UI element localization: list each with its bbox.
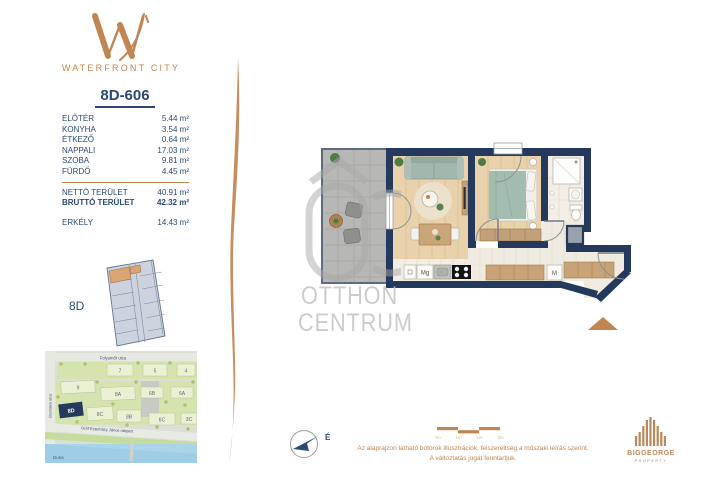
map-building-label: 4	[185, 369, 188, 375]
entrance-triangle-marker	[588, 317, 618, 330]
balcony-area: 14.43 m²	[157, 218, 189, 229]
scale-label: 3m	[497, 435, 504, 440]
room-label: SZOBA	[62, 156, 89, 167]
net-label: NETTÓ TERÜLET	[62, 188, 128, 199]
towel-ring	[550, 205, 554, 209]
street-label-top: Folyamőr utca	[100, 356, 127, 361]
balcony-label: ERKÉLY	[62, 218, 93, 229]
table-row: NAPPALI 17.03 m²	[62, 146, 189, 157]
bed	[489, 169, 537, 221]
location-map: 7 5 4 9 8A 6B 6A 8C 8B 6C 3C 8D Folyamőr…	[45, 351, 197, 463]
unit-title-wrap: 8D-606	[62, 87, 188, 108]
room-label: FÜRDŐ	[62, 167, 90, 178]
table-row: ELŐTÉR 5.44 m²	[62, 114, 189, 125]
table-row: FÜRDŐ 4.45 m²	[62, 167, 189, 178]
room-area: 3.54 m²	[162, 125, 189, 136]
room-area: 9.81 m²	[162, 156, 189, 167]
dishwasher-label: Mg	[421, 271, 429, 277]
hall-cabinet	[486, 265, 544, 280]
gross-area: 42.32 m²	[157, 198, 189, 209]
map-building-label: 8C	[97, 412, 104, 418]
map-building-label: 6C	[159, 418, 166, 424]
utility-shaft	[567, 226, 583, 244]
table-row: KONYHA 3.54 m²	[62, 125, 189, 136]
tv-cabinet	[462, 181, 468, 215]
room-area: 0.64 m²	[162, 135, 189, 146]
brand-name: WATERFRONT CITY	[55, 63, 187, 73]
river-label: Duna	[53, 455, 64, 460]
unit-id: 8D-606	[95, 87, 154, 108]
map-building-label: 8B	[126, 415, 133, 421]
room-area-table: ELŐTÉR 5.44 m² KONYHA 3.54 m² ÉTKEZŐ 0.6…	[62, 114, 189, 228]
map-building-label-8d: 8D	[67, 408, 75, 415]
table-row: SZOBA 9.81 m²	[62, 156, 189, 167]
kitchen-appliances	[404, 265, 471, 279]
plant	[478, 158, 486, 166]
floorplan-sheet: { "brand": { "name": "WATERFRONT CITY" }…	[0, 0, 707, 500]
watermark-line1: OTTHON	[301, 282, 398, 311]
balcony-area-row: ERKÉLY 14.43 m²	[62, 218, 189, 229]
nightstand	[530, 159, 537, 166]
room-area: 5.44 m²	[162, 114, 189, 125]
gross-label: BRUTTÓ TERÜLET	[62, 198, 134, 209]
watermark-line2: CENTRUM	[298, 309, 413, 338]
room-area: 17.03 m²	[157, 146, 189, 157]
table-row: ÉTKEZŐ 0.64 m²	[62, 135, 189, 146]
map-building-label: 8A	[115, 392, 122, 398]
map-building-label: 6B	[149, 391, 156, 397]
gross-area-row: BRUTTÓ TERÜLET 42.32 m²	[62, 198, 189, 209]
street-label-left: Úszódaru utca	[48, 393, 53, 418]
room-area: 4.45 m²	[162, 167, 189, 178]
agency-subtitle: PROPERTY	[635, 459, 668, 463]
otthon-centrum-watermark-logo	[289, 152, 401, 284]
room-label: KONYHA	[62, 125, 96, 136]
curve-divider	[224, 57, 248, 463]
building-label: 8D	[69, 299, 85, 313]
agency-name: BIGGEORGE	[627, 450, 675, 457]
biggeorge-property-logo: BIGGEORGE PROPERTY	[616, 410, 688, 466]
sofa	[405, 157, 463, 179]
map-building-label: 6A	[179, 391, 186, 397]
room-label: ELŐTÉR	[62, 114, 94, 125]
north-label: É	[325, 433, 331, 442]
net-area: 40.91 m²	[157, 188, 189, 199]
nightstand	[530, 223, 537, 230]
disclaimer-line2: A változtatás jogát fenntartjuk.	[330, 454, 616, 464]
washer-label: M	[552, 271, 557, 277]
entry-cabinet	[564, 262, 614, 278]
disclaimer-line1: Az alaprajzon látható bútorok illusztrác…	[330, 444, 616, 454]
map-building-label: 5	[154, 369, 157, 375]
building-key-plan: 8D	[55, 252, 195, 354]
map-building-label: 9	[77, 386, 80, 392]
shower	[553, 158, 580, 184]
stove	[452, 265, 471, 279]
room-label: ÉTKEZŐ	[62, 135, 94, 146]
copper-divider	[62, 182, 189, 183]
map-building-label: 3C	[186, 417, 193, 423]
towel-ring	[550, 191, 554, 195]
scale-label: 0m	[435, 435, 441, 440]
disclaimer: Az alaprajzon látható bútorok illusztrác…	[330, 444, 616, 464]
scale-label: 1m	[455, 435, 462, 440]
map-building-label: 7	[119, 369, 122, 375]
scale-bar: 0m 1m 2m 3m	[435, 424, 505, 442]
coffee-table	[422, 191, 438, 207]
room-label: NAPPALI	[62, 146, 95, 157]
scale-label: 2m	[476, 435, 483, 440]
waterfront-city-logo	[90, 13, 150, 61]
bathroom-sink	[569, 188, 582, 201]
net-area-row: NETTÓ TERÜLET 40.91 m²	[62, 188, 189, 199]
wardrobe	[480, 229, 541, 241]
plant	[437, 204, 444, 211]
